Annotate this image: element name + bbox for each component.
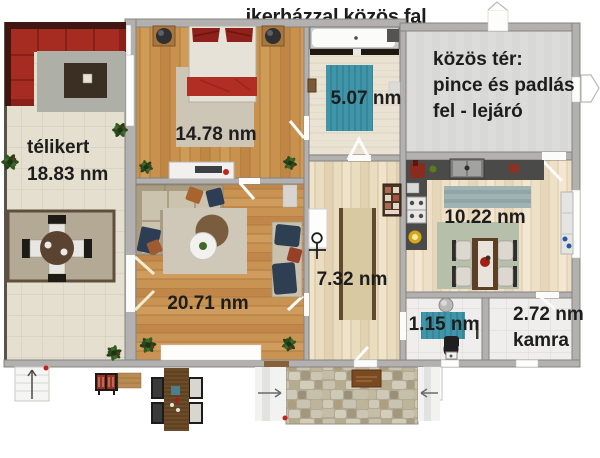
svg-text:18.83 nm: 18.83 nm — [27, 164, 108, 185]
svg-text:20.71 nm: 20.71 nm — [167, 293, 248, 314]
svg-text:14.78 nm: 14.78 nm — [175, 124, 256, 145]
svg-text:10.22 nm: 10.22 nm — [444, 207, 525, 228]
svg-text:fel - lejáró: fel - lejáró — [433, 101, 523, 122]
svg-text:1.15 nm: 1.15 nm — [409, 314, 480, 335]
svg-text:5.07 nm: 5.07 nm — [331, 88, 402, 109]
svg-text:télikert: télikert — [27, 137, 90, 158]
svg-text:közös tér:: közös tér: — [433, 49, 523, 70]
svg-text:pince és padlás: pince és padlás — [433, 75, 575, 96]
svg-text:2.72 nm: 2.72 nm — [513, 304, 584, 325]
svg-text:7.32 nm: 7.32 nm — [317, 269, 388, 290]
svg-text:kamra: kamra — [513, 330, 569, 351]
